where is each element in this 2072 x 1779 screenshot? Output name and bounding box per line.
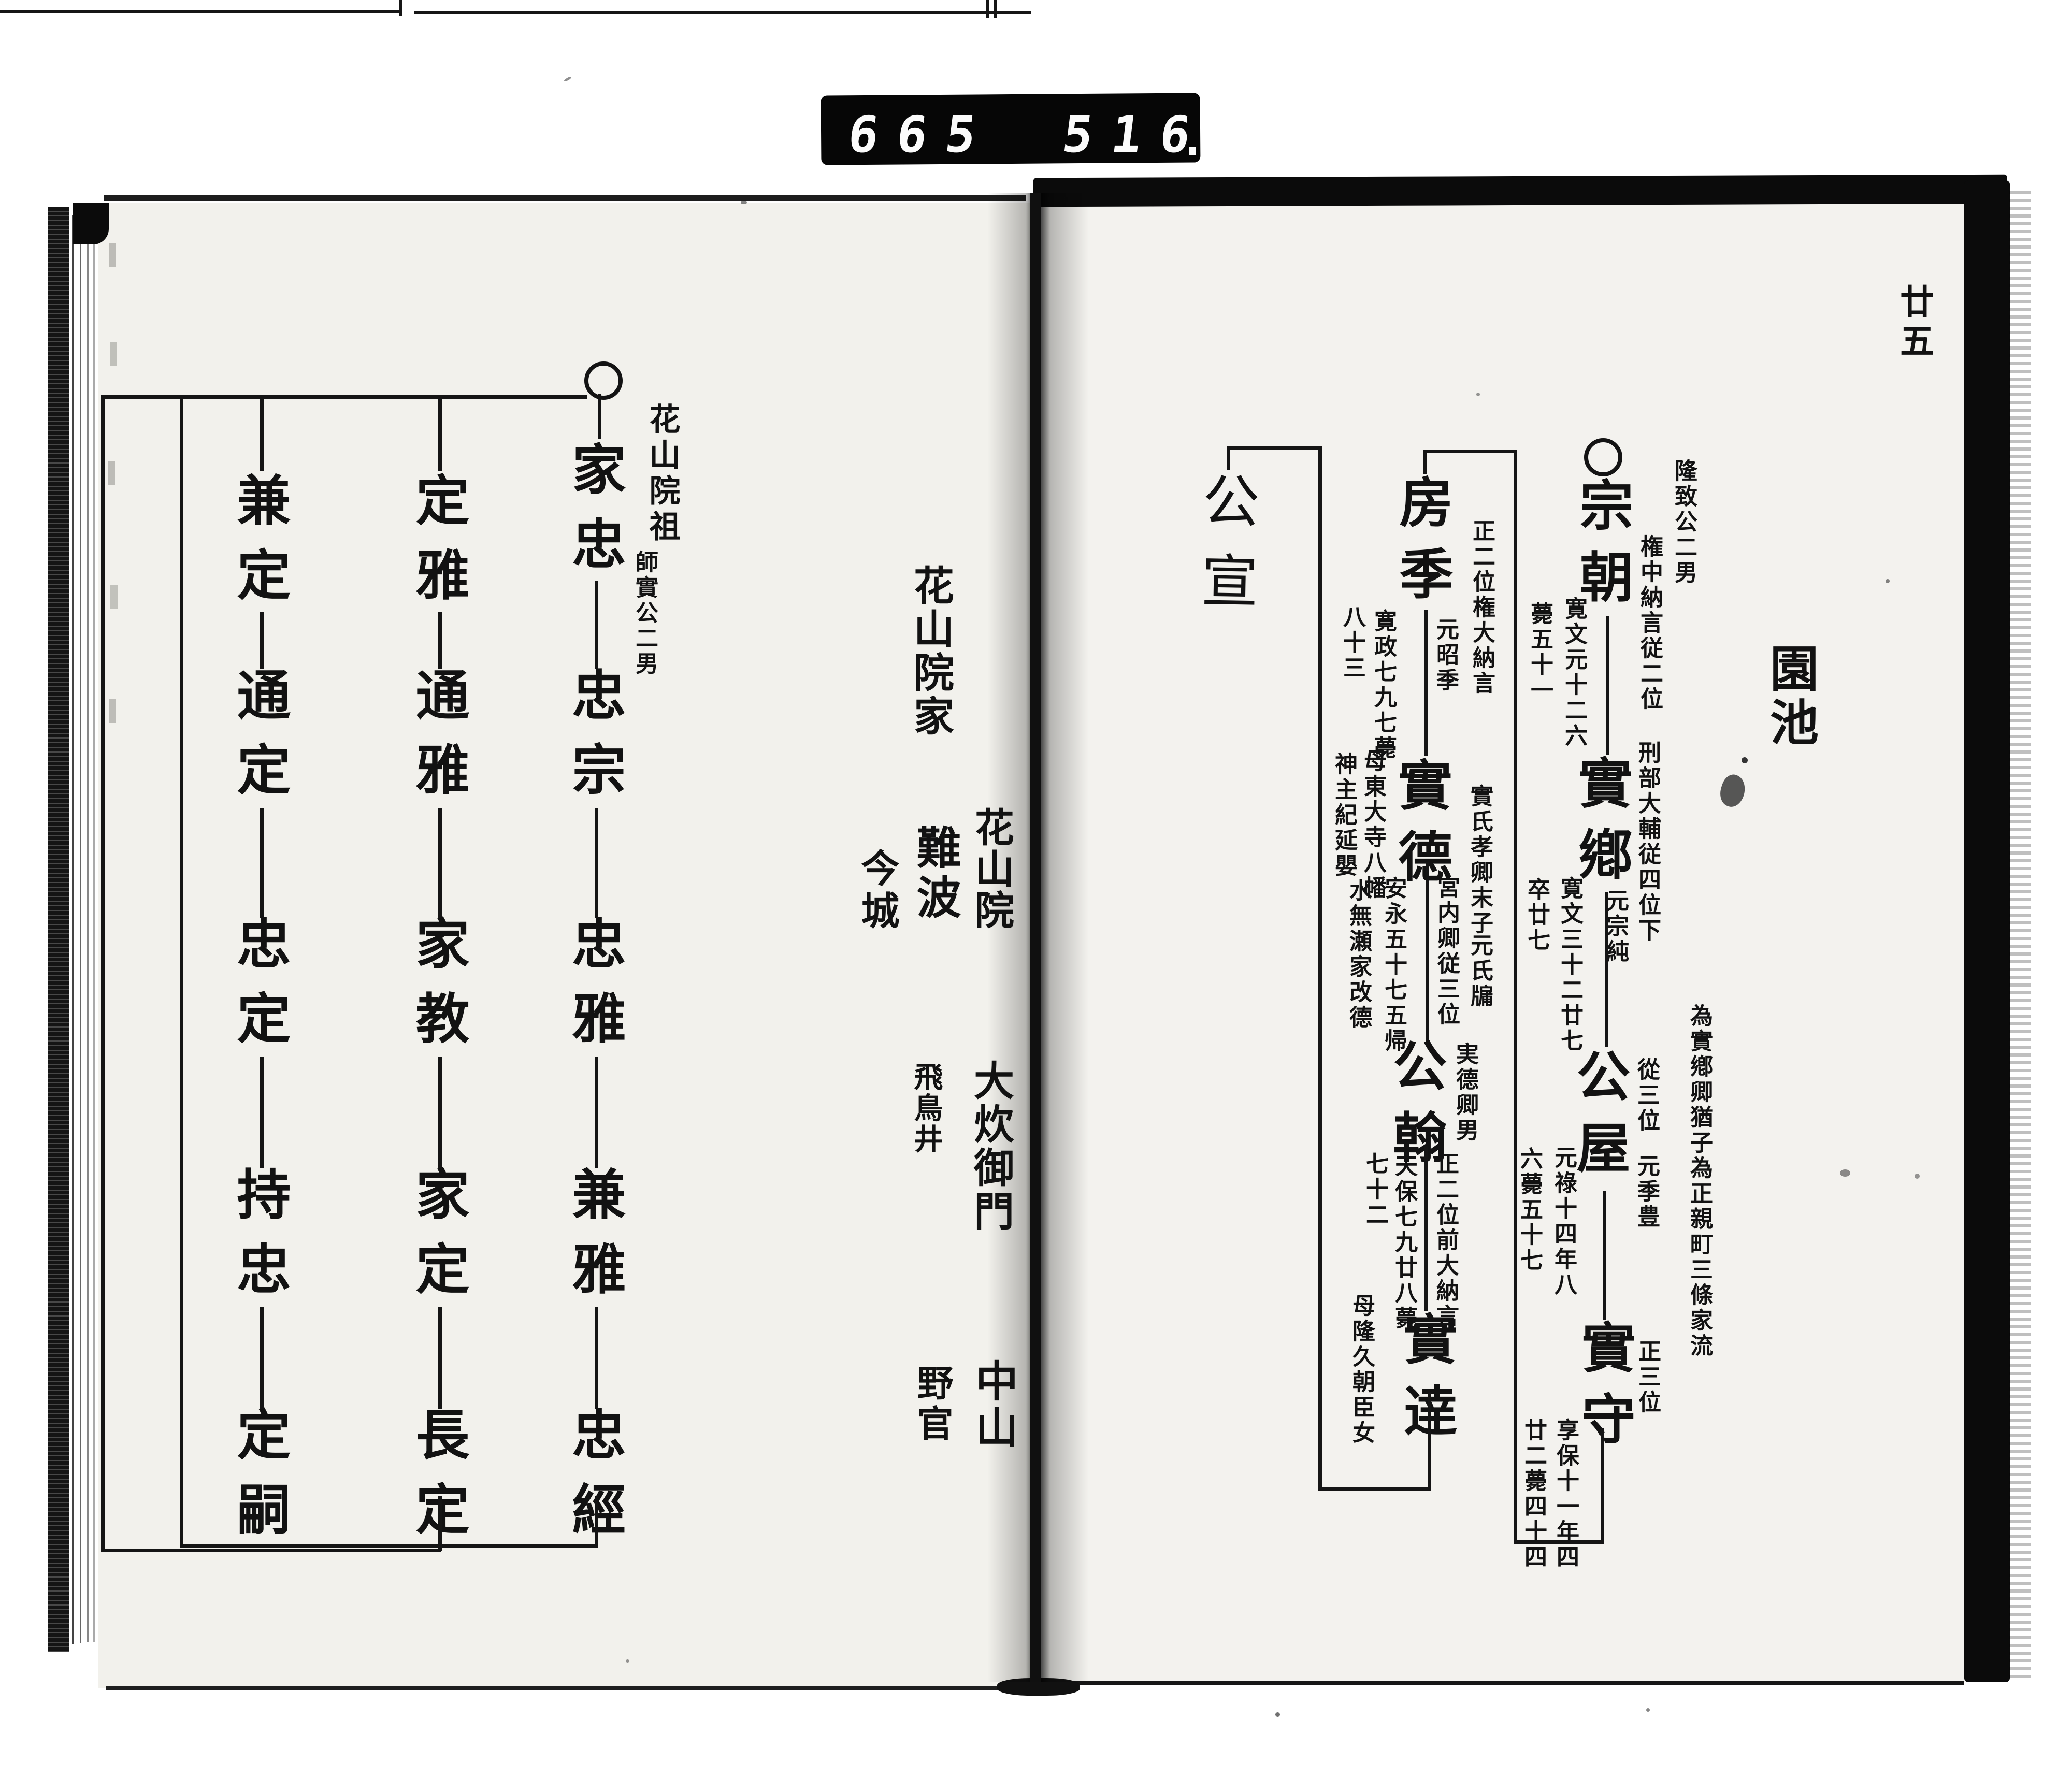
frame-counter-dot [1189,147,1196,155]
speck [1886,579,1890,583]
left-col2-name-0: 定雅 [411,472,465,621]
entry-deathdate-gen1: 寛文元十二六 [1562,597,1585,749]
left-col1-name-0: 家忠 [567,441,621,590]
tree-connector [1318,1487,1431,1491]
tree-connector [1424,610,1428,756]
entry-name-gen9: 公宣 [1195,471,1255,631]
left-col3-name-4: 定嗣 [232,1407,286,1556]
scanned-genealogy-spread: 665 516 廿五 園池 宗朝 隆致公二男 権中納言従二位 寛文元十二六 薨五… [0,0,2072,1779]
left-col1-name-4: 忠經 [567,1407,621,1556]
left-col2-name-1: 通雅 [411,667,465,816]
tree-connector [595,808,598,918]
left-page-bottom-edge [106,1686,1027,1690]
speck [1915,1174,1920,1179]
founder-origin-label: 師實公二男 [633,550,656,677]
tree-connector [438,1496,442,1551]
tree-return-rail-inner [180,395,183,1548]
family-label-kazanin: 花山院 [962,807,1019,931]
entry-rank-gen3: 從三位 [1635,1058,1658,1134]
entry-deathage-gen3: 六薨五十七 [1518,1147,1541,1274]
entry-event1-gen6: 安永五十七五帰 [1382,876,1405,1054]
tree-connector [1227,446,1322,450]
tree-connector [1426,862,1429,1042]
right-page-top-edge-band [1033,175,2007,207]
entry-mother2-gen6: 神主紀延嬰 [1332,752,1355,879]
entry-rank-gen5: 正二位権大納言 [1470,519,1493,697]
tree-connector [595,1057,598,1168]
scan-top-tick [399,0,402,16]
entry-rank-gen4: 正三位 [1636,1339,1659,1415]
tree-connector [260,612,264,669]
book-top-left-corner [73,203,109,244]
speck [1646,1708,1650,1712]
tree-connector [1605,892,1608,1047]
tree-connector [438,808,442,918]
book-left-cover-edge [48,207,69,1652]
entry-name-gen3: 公屋 [1572,1048,1625,1191]
speck [741,201,747,204]
tree-connector [595,1307,598,1409]
entry-deathdate-gen5: 寛政七九七薨 [1372,609,1394,761]
tree-connector [1423,450,1517,453]
tree-top-rail [101,395,587,399]
tree-connector [438,1057,442,1168]
tree-connector [1606,616,1609,755]
entry-origin-gen6: 實氏孝卿末子 [1468,784,1491,936]
entry-origname-gen5: 元昭季 [1434,617,1457,693]
family-label-naniwa: 難波 [902,825,967,924]
tree-connector [1514,1540,1604,1544]
family-label-imaki: 今城 [850,848,905,933]
lineage-start-marker [1584,438,1622,476]
entry-name-gen8: 實逹 [1399,1311,1452,1454]
family-label-nakayama: 中山 [962,1359,1024,1452]
speck [1476,393,1480,396]
speck [1275,1712,1280,1717]
right-page-bottom-edge [1043,1681,1964,1685]
tree-connector [1424,1146,1428,1311]
tree-connector [1603,1191,1606,1320]
entry-deathdate-gen3: 元祿十四年八 [1552,1146,1575,1298]
entry-adoption-gen3: 為實鄕卿猶子為正親町三條家流 [1688,1004,1710,1359]
tree-connector [1227,446,1230,470]
entry-deathage-gen7: 七十二 [1363,1152,1386,1228]
scan-top-line-left [0,10,401,13]
right-fore-edge-band [1964,180,2010,1682]
page-number: 廿五 [1890,284,1939,363]
founder-label: 花山院祖 [646,403,678,546]
tree-connector [595,581,598,669]
entry-mother-gen8: 母隆久朝臣女 [1350,1294,1373,1446]
tree-return-riser [1514,450,1517,1543]
scan-top-doubletick [986,0,989,18]
page-stack-line [80,218,81,1643]
tree-drop-col2 [438,395,442,471]
family-label-kazanin-ke: 花山院家 [901,565,959,739]
left-col3-name-1: 通定 [232,667,286,816]
tree-connector [260,1057,264,1168]
entry-origin-gen7: 実德卿男 [1454,1042,1476,1144]
tree-connector [438,612,442,669]
entry-rank-gen2: 刑部大輔従四位下 [1636,741,1659,944]
entry-deathdate-gen4: 享保十一年四 [1554,1418,1577,1570]
page-stack-line [72,215,74,1644]
entry-deathage-gen1: 薨五十一 [1528,602,1551,703]
tree-return-rail-outer [101,395,105,1552]
entry-rank-gen7: 正二位前大納言 [1434,1152,1457,1329]
page-stack-line [87,220,89,1642]
left-col3-name-2: 忠定 [232,916,286,1065]
entry-rank-gen6: 宮内卿従三位 [1435,875,1458,1028]
ink-bleed-marks [109,243,116,267]
tree-connector [438,1307,442,1409]
frame-counter-left-digits: 665 [845,106,998,164]
left-col2-name-4: 長定 [411,1407,465,1556]
left-col3-name-3: 持忠 [232,1166,286,1315]
entry-deathage-gen5: 八十三 [1341,605,1363,681]
left-col2-name-2: 家教 [411,916,465,1065]
entry-rank-gen1: 権中納言従二位 [1638,534,1661,712]
speck [1840,1169,1850,1177]
left-col3-name-0: 兼定 [232,472,286,621]
speck [626,1659,629,1663]
family-label-nonomiya: 野官 [906,1364,959,1445]
right-page-paper [1042,198,1966,1682]
entry-name-gen5: 房季 [1394,474,1448,617]
tree-connector [595,1496,598,1546]
entry-event2-gen6: 水無瀬家改德 [1347,878,1370,1031]
family-heading: 園池 [1755,643,1825,751]
tree-drop-col3 [260,395,264,471]
tree-connector [260,808,264,918]
page-stack-line [93,223,95,1642]
left-col1-name-3: 兼雅 [567,1166,621,1315]
entry-origname-gen6: 元氏牖 [1468,933,1491,1009]
entry-deathage-gen2: 卒廿七 [1525,877,1548,953]
left-col1-name-1: 忠宗 [567,667,621,816]
lineage-start-marker-left [584,361,623,400]
speck [564,76,572,82]
tree-connector [598,394,601,439]
tree-connector [1601,1428,1604,1543]
entry-deathdate-gen2: 寛文三十二廿七 [1558,876,1581,1054]
entry-origin-gen1: 隆致公二男 [1672,459,1695,586]
entry-origname-gen3: 元季豊 [1635,1154,1658,1230]
entry-deathdate-gen7: 天保七九廿八薨 [1392,1154,1415,1332]
left-col2-name-3: 家定 [411,1166,465,1315]
binding-gutter-core [1030,193,1041,1682]
left-col1-name-2: 忠雅 [567,916,621,1065]
tree-return-riser [1318,446,1322,1491]
tree-connector [260,1307,264,1409]
ink-stain-dot [1742,757,1748,763]
right-fore-edge-speckle [2009,186,2031,1678]
family-label-asukai: 飛鳥井 [905,1062,947,1155]
scan-top-line-right [414,11,1031,14]
family-label-oinomikado: 大炊御門 [961,1060,1019,1234]
left-page-top-edge [104,195,1026,201]
tree-connector [1423,450,1427,474]
tree-connector [1428,1393,1431,1491]
entry-deathage-gen4: 廿二薨四十四 [1522,1418,1545,1570]
